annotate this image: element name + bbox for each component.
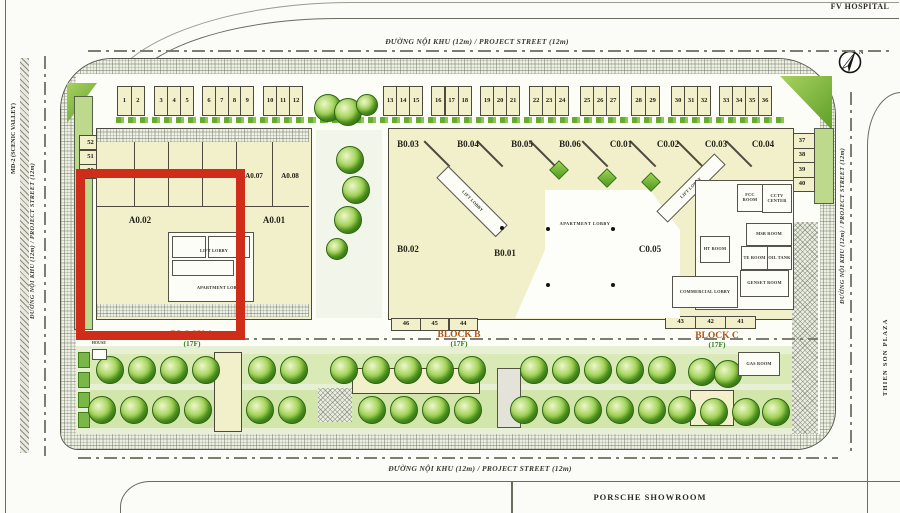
tree-icon	[356, 94, 378, 116]
column-dot	[546, 283, 550, 287]
block-b-label: BLOCK B (17F)	[417, 330, 501, 349]
shop-unit: 3	[154, 86, 168, 116]
room-label: GENSET ROOM	[747, 281, 781, 286]
tree-icon	[762, 398, 790, 426]
south-parcel-divider	[511, 482, 513, 513]
shop-group: 22 23 24	[530, 86, 569, 116]
unit-label: A0.01	[244, 216, 304, 225]
shop-unit: 17	[445, 86, 459, 116]
shop-group: 6 7 8 9	[203, 86, 254, 116]
block-a-balcony-hatch	[97, 129, 309, 142]
unit-label: C0.02	[645, 140, 691, 149]
unit-label: B0.03	[385, 140, 431, 149]
thien-son-plaza-label: THIEN SON PLAZA	[879, 298, 892, 416]
tree-icon	[336, 146, 364, 174]
service-room: FCC ROOM	[737, 184, 763, 212]
shop-unit: 42	[695, 316, 726, 329]
column-dot	[611, 227, 615, 231]
tree-icon	[128, 356, 156, 384]
tree-icon	[394, 356, 422, 384]
apartment-lobby-label: APARTMENT LOBBY	[550, 222, 620, 227]
tree-icon	[422, 396, 450, 424]
site-edge-hatch-top	[61, 59, 835, 74]
shop-unit: 16	[431, 86, 445, 116]
tree-icon	[426, 356, 454, 384]
unit-label: B0.01	[482, 249, 528, 258]
shop-unit: 10	[263, 86, 277, 116]
west-boundary-line	[5, 0, 6, 513]
guard-house	[92, 349, 107, 360]
shop-unit: 14	[396, 86, 410, 116]
tree-icon	[246, 396, 274, 424]
service-room: CCTV CENTER	[762, 184, 792, 213]
right-street-label: ĐƯỜNG NỘI KHU (12m) / PROJECT STREET (12…	[837, 128, 849, 323]
shop-group: 28 29	[632, 86, 660, 116]
gas-room: GAS ROOM	[738, 352, 780, 376]
shop-unit: 15	[409, 86, 423, 116]
shop-unit: 29	[645, 86, 660, 116]
south-parcels-edge	[120, 481, 900, 513]
block-floors: (17F)	[675, 341, 759, 349]
shop-unit: 12	[289, 86, 303, 116]
shop-unit: 33	[719, 86, 733, 116]
tree-icon	[362, 356, 390, 384]
plaza-paving	[318, 388, 352, 422]
service-room: GENSET ROOM	[740, 270, 789, 297]
fv-hospital-label: FV HOSPITAL	[824, 3, 896, 13]
left-street-label: ĐƯỜNG NỘI KHU (12m) / PROJECT STREET (12…	[27, 138, 39, 343]
unit-label: C0.01	[598, 140, 644, 149]
tree-icon	[160, 356, 188, 384]
bottom-street-centerline	[78, 457, 838, 459]
service-room: TE ROOM	[741, 246, 768, 270]
tree-icon	[648, 356, 676, 384]
hedge-row	[116, 117, 784, 123]
column-dot	[546, 227, 550, 231]
room-label: COMMERCIAL LOBBY	[680, 290, 730, 295]
shop-unit: 1	[117, 86, 131, 116]
tree-icon	[574, 396, 602, 424]
porsche-showroom-label: PORSCHE SHOWROOM	[558, 493, 742, 502]
tree-icon	[280, 356, 308, 384]
tree-icon	[638, 396, 666, 424]
tree-icon	[248, 356, 276, 384]
unit-label: B0.02	[385, 245, 431, 254]
bush-icon	[78, 352, 90, 368]
shop-unit: 34	[732, 86, 746, 116]
tree-icon	[542, 396, 570, 424]
tree-icon	[120, 396, 148, 424]
tree-icon	[96, 356, 124, 384]
tree-icon	[688, 358, 716, 386]
shop-group: 13 14 15	[384, 86, 423, 116]
room-label: MSB ROOM	[756, 232, 782, 237]
shop-group: 33 34 35 36	[720, 86, 772, 116]
shop-group: 19 20 21	[481, 86, 520, 116]
tree-icon	[552, 356, 580, 384]
east-walkway-hatch	[792, 222, 818, 434]
room-label: FCC ROOM	[738, 193, 762, 203]
shop-unit: 18	[458, 86, 472, 116]
shop-unit: 23	[542, 86, 556, 116]
shop-group: 16 17 18	[432, 86, 472, 116]
shop-unit: 6	[202, 86, 216, 116]
top-street-centerline	[88, 50, 892, 52]
shop-unit: 5	[180, 86, 194, 116]
shop-unit: 30	[671, 86, 685, 116]
shop-unit: 8	[228, 86, 242, 116]
shop-unit: 11	[276, 86, 290, 116]
shop-unit: 2	[131, 86, 145, 116]
shop-unit: 27	[606, 86, 620, 116]
shop-group: 3 4 5	[155, 86, 194, 116]
tree-icon	[330, 356, 358, 384]
column-dot	[611, 283, 615, 287]
unit-label: B0.06	[547, 140, 593, 149]
room-label: CCTV CENTER	[763, 194, 791, 204]
block-c-label: BLOCK C (17F)	[675, 331, 759, 350]
tree-icon	[458, 356, 486, 384]
tree-icon	[278, 396, 306, 424]
room-label: TE ROOM	[743, 256, 765, 261]
shop-unit: 21	[506, 86, 520, 116]
tree-icon	[334, 206, 362, 234]
shop-unit: 13	[383, 86, 397, 116]
top-street-label: ĐƯỜNG NỘI KHU (12m) / PROJECT STREET (12…	[365, 37, 589, 46]
shop-unit: 22	[529, 86, 543, 116]
shop-unit: 41	[725, 316, 756, 329]
tree-icon	[342, 176, 370, 204]
shop-unit: 31	[684, 86, 698, 116]
left-street-centerline	[44, 56, 46, 456]
commercial-lobby: COMMERCIAL LOBBY	[672, 276, 738, 308]
service-room: OIL TANK	[767, 246, 792, 270]
room-label: GAS ROOM	[746, 362, 771, 367]
tree-icon	[88, 396, 116, 424]
service-room: HT ROOM	[700, 236, 730, 263]
md2-scenic-valley-label: MD-2 (SCENIC VALLEY)	[7, 83, 20, 195]
shop-group: 10 11 12	[264, 86, 303, 116]
tree-icon	[326, 238, 348, 260]
service-room: MSB ROOM	[746, 223, 792, 246]
shop-unit: 19	[480, 86, 494, 116]
site-edge-hatch-bottom	[61, 434, 835, 449]
shop-unit: 9	[240, 86, 254, 116]
tree-icon	[616, 356, 644, 384]
unit-label: A0.08	[272, 173, 308, 180]
unit-label: B0.05	[499, 140, 545, 149]
right-street-centerline	[850, 92, 852, 456]
tree-icon	[192, 356, 220, 384]
room-label: OIL TANK	[768, 256, 790, 261]
column-dot	[500, 226, 504, 230]
shop-unit: 26	[593, 86, 607, 116]
highlight-rectangle	[76, 169, 245, 340]
shop-unit: 28	[631, 86, 646, 116]
shop-unit: 4	[167, 86, 181, 116]
shop-unit: 36	[758, 86, 772, 116]
tree-icon	[606, 396, 634, 424]
block-floors: (17F)	[150, 340, 234, 348]
tree-icon	[732, 398, 760, 426]
unit-label: C0.05	[627, 245, 673, 254]
unit-label: C0.04	[740, 140, 786, 149]
shop-group: 25 26 27	[581, 86, 620, 116]
block-floors: (17F)	[417, 340, 501, 348]
bottom-street-label: ĐƯỜNG NỘI KHU (12m) / PROJECT STREET (12…	[368, 464, 592, 473]
tree-icon	[454, 396, 482, 424]
shop-unit: 35	[745, 86, 759, 116]
tree-icon	[390, 396, 418, 424]
tree-icon	[184, 396, 212, 424]
shop-unit: 32	[697, 86, 711, 116]
shop-unit: 25	[580, 86, 594, 116]
tree-icon	[520, 356, 548, 384]
tree-icon	[358, 396, 386, 424]
shop-unit: 20	[493, 86, 507, 116]
tree-icon	[510, 396, 538, 424]
tree-icon	[668, 396, 696, 424]
green-strip-east	[814, 128, 834, 204]
shop-unit: 24	[555, 86, 569, 116]
unit-label: B0.04	[445, 140, 491, 149]
site-plan: FV HOSPITAL ĐƯỜNG NỘI KHU (12m) / PROJEC…	[0, 0, 900, 513]
shop-group: 1 2	[118, 86, 145, 116]
room-label: HT ROOM	[704, 247, 726, 252]
shop-unit: 7	[215, 86, 229, 116]
bush-icon	[78, 372, 90, 388]
tree-icon	[700, 398, 728, 426]
tree-icon	[584, 356, 612, 384]
tree-icon	[152, 396, 180, 424]
shop-group: 30 31 32	[672, 86, 711, 116]
unit-label: C0.03	[693, 140, 739, 149]
